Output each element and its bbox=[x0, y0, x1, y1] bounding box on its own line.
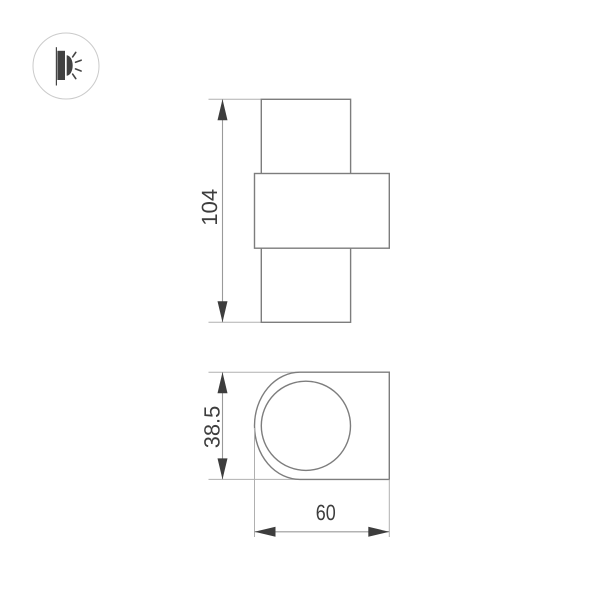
svg-text:104: 104 bbox=[197, 189, 222, 226]
svg-text:60: 60 bbox=[316, 500, 336, 525]
svg-text:38.5: 38.5 bbox=[199, 406, 224, 449]
